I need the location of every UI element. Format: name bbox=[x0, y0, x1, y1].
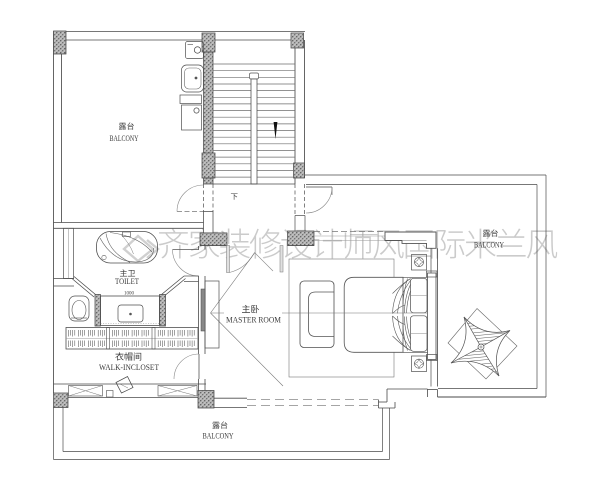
svg-text:1000: 1000 bbox=[124, 292, 135, 297]
svg-text:BALCONY: BALCONY bbox=[474, 241, 504, 250]
svg-text:MASTER ROOM: MASTER ROOM bbox=[226, 315, 281, 325]
svg-text:BALCONY: BALCONY bbox=[203, 432, 234, 441]
svg-text:TOILET: TOILET bbox=[115, 277, 139, 286]
svg-text:WALK-INCLOSET: WALK-INCLOSET bbox=[99, 363, 159, 372]
svg-text:BALCONY: BALCONY bbox=[110, 134, 139, 143]
